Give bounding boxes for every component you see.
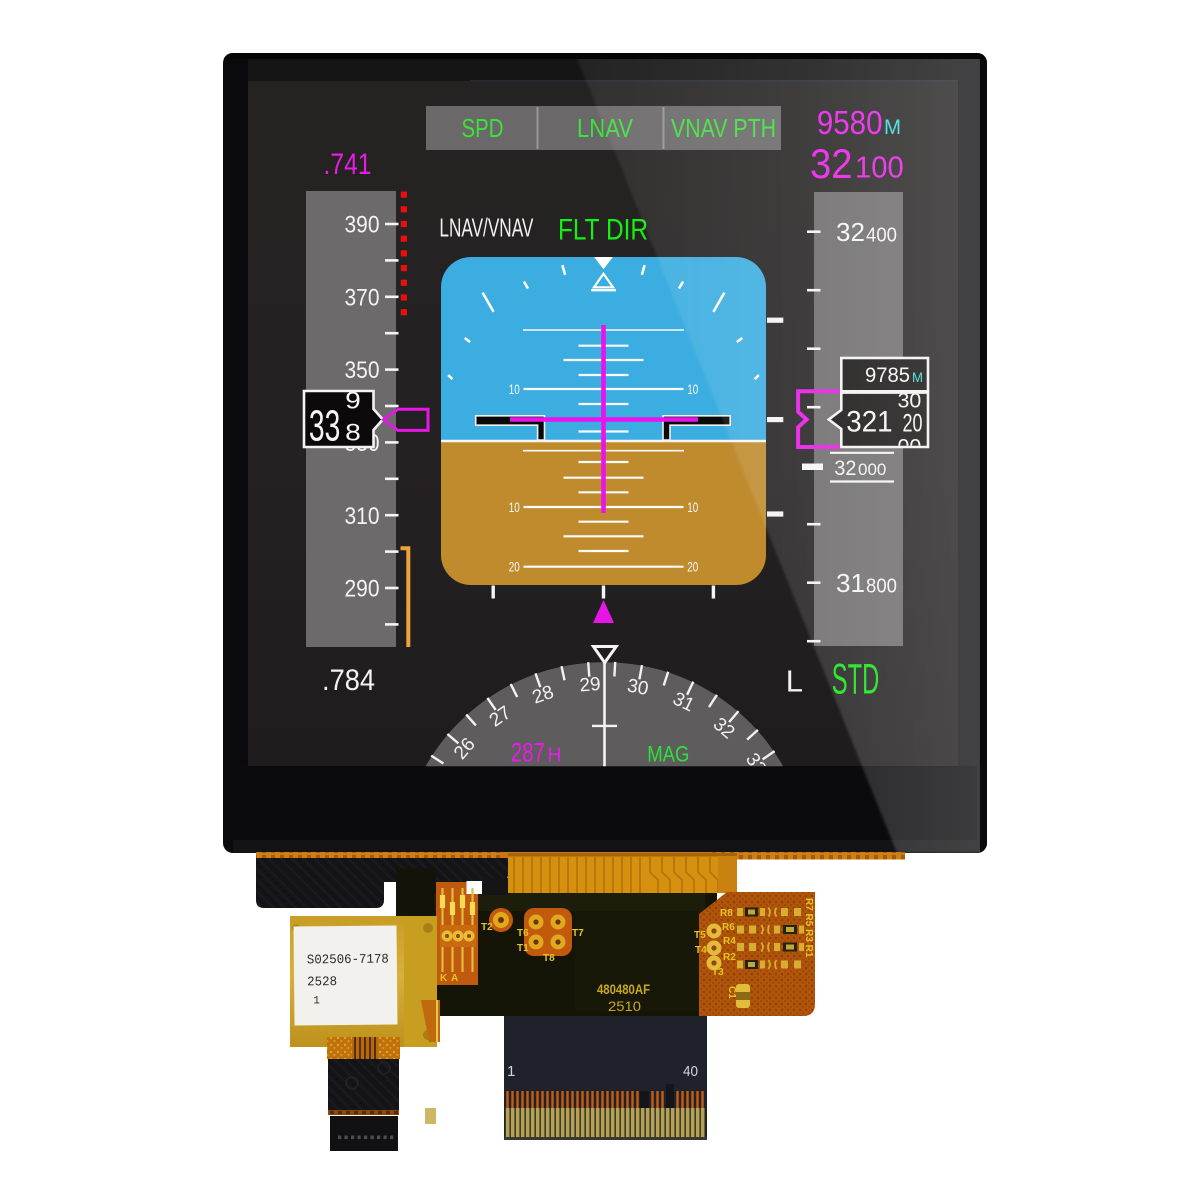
svg-text:30: 30 — [626, 675, 651, 700]
svg-text:1: 1 — [313, 995, 320, 1007]
svg-text:8: 8 — [345, 419, 361, 446]
svg-text:LNAV/VNAV: LNAV/VNAV — [439, 213, 533, 243]
svg-text:.741: .741 — [324, 148, 372, 181]
svg-text:9: 9 — [345, 388, 361, 415]
svg-text:S02506-7178: S02506-7178 — [307, 952, 389, 968]
svg-text:20: 20 — [687, 560, 698, 575]
svg-text:R7 R5 R3 R1: R7 R5 R3 R1 — [803, 898, 814, 958]
svg-text:R2: R2 — [723, 952, 736, 963]
svg-text:MAG: MAG — [647, 742, 689, 767]
svg-text:2510: 2510 — [608, 998, 641, 1014]
svg-text:A: A — [451, 973, 458, 984]
svg-text:.784: .784 — [322, 664, 375, 697]
svg-text:C1: C1 — [726, 986, 737, 999]
svg-text:2528: 2528 — [307, 974, 337, 989]
svg-text:R8: R8 — [720, 908, 733, 919]
svg-text:33: 33 — [309, 401, 340, 450]
svg-text:10: 10 — [687, 382, 698, 397]
svg-text:T4: T4 — [695, 945, 707, 956]
svg-text:290: 290 — [345, 576, 380, 603]
svg-text:10: 10 — [509, 382, 520, 397]
svg-text:T5: T5 — [694, 930, 706, 941]
svg-text:40: 40 — [683, 1063, 698, 1080]
svg-text:390: 390 — [345, 212, 380, 239]
svg-text:K: K — [440, 973, 448, 984]
svg-text:R4: R4 — [723, 936, 736, 947]
svg-text:480480AF: 480480AF — [597, 982, 650, 997]
svg-text:20: 20 — [509, 560, 520, 575]
svg-text:T1: T1 — [517, 943, 529, 954]
svg-text:370: 370 — [345, 284, 380, 311]
svg-text:T2: T2 — [481, 922, 493, 933]
svg-text:310: 310 — [345, 503, 380, 530]
svg-text:29: 29 — [579, 674, 602, 697]
svg-text:T8: T8 — [543, 953, 555, 964]
svg-text:T3: T3 — [712, 967, 724, 978]
svg-text:FLT DIR: FLT DIR — [558, 214, 648, 247]
svg-text:10: 10 — [687, 500, 698, 515]
svg-text:287: 287 — [511, 738, 545, 768]
svg-text:1: 1 — [507, 1063, 515, 1080]
svg-text:H: H — [548, 745, 562, 767]
svg-text:R6: R6 — [722, 922, 735, 933]
svg-text:350: 350 — [345, 357, 380, 384]
svg-text:SPD: SPD — [462, 113, 504, 143]
svg-text:T7: T7 — [572, 928, 584, 939]
svg-text:L: L — [786, 664, 803, 699]
svg-text:T6: T6 — [517, 928, 529, 939]
svg-text:10: 10 — [509, 500, 520, 515]
